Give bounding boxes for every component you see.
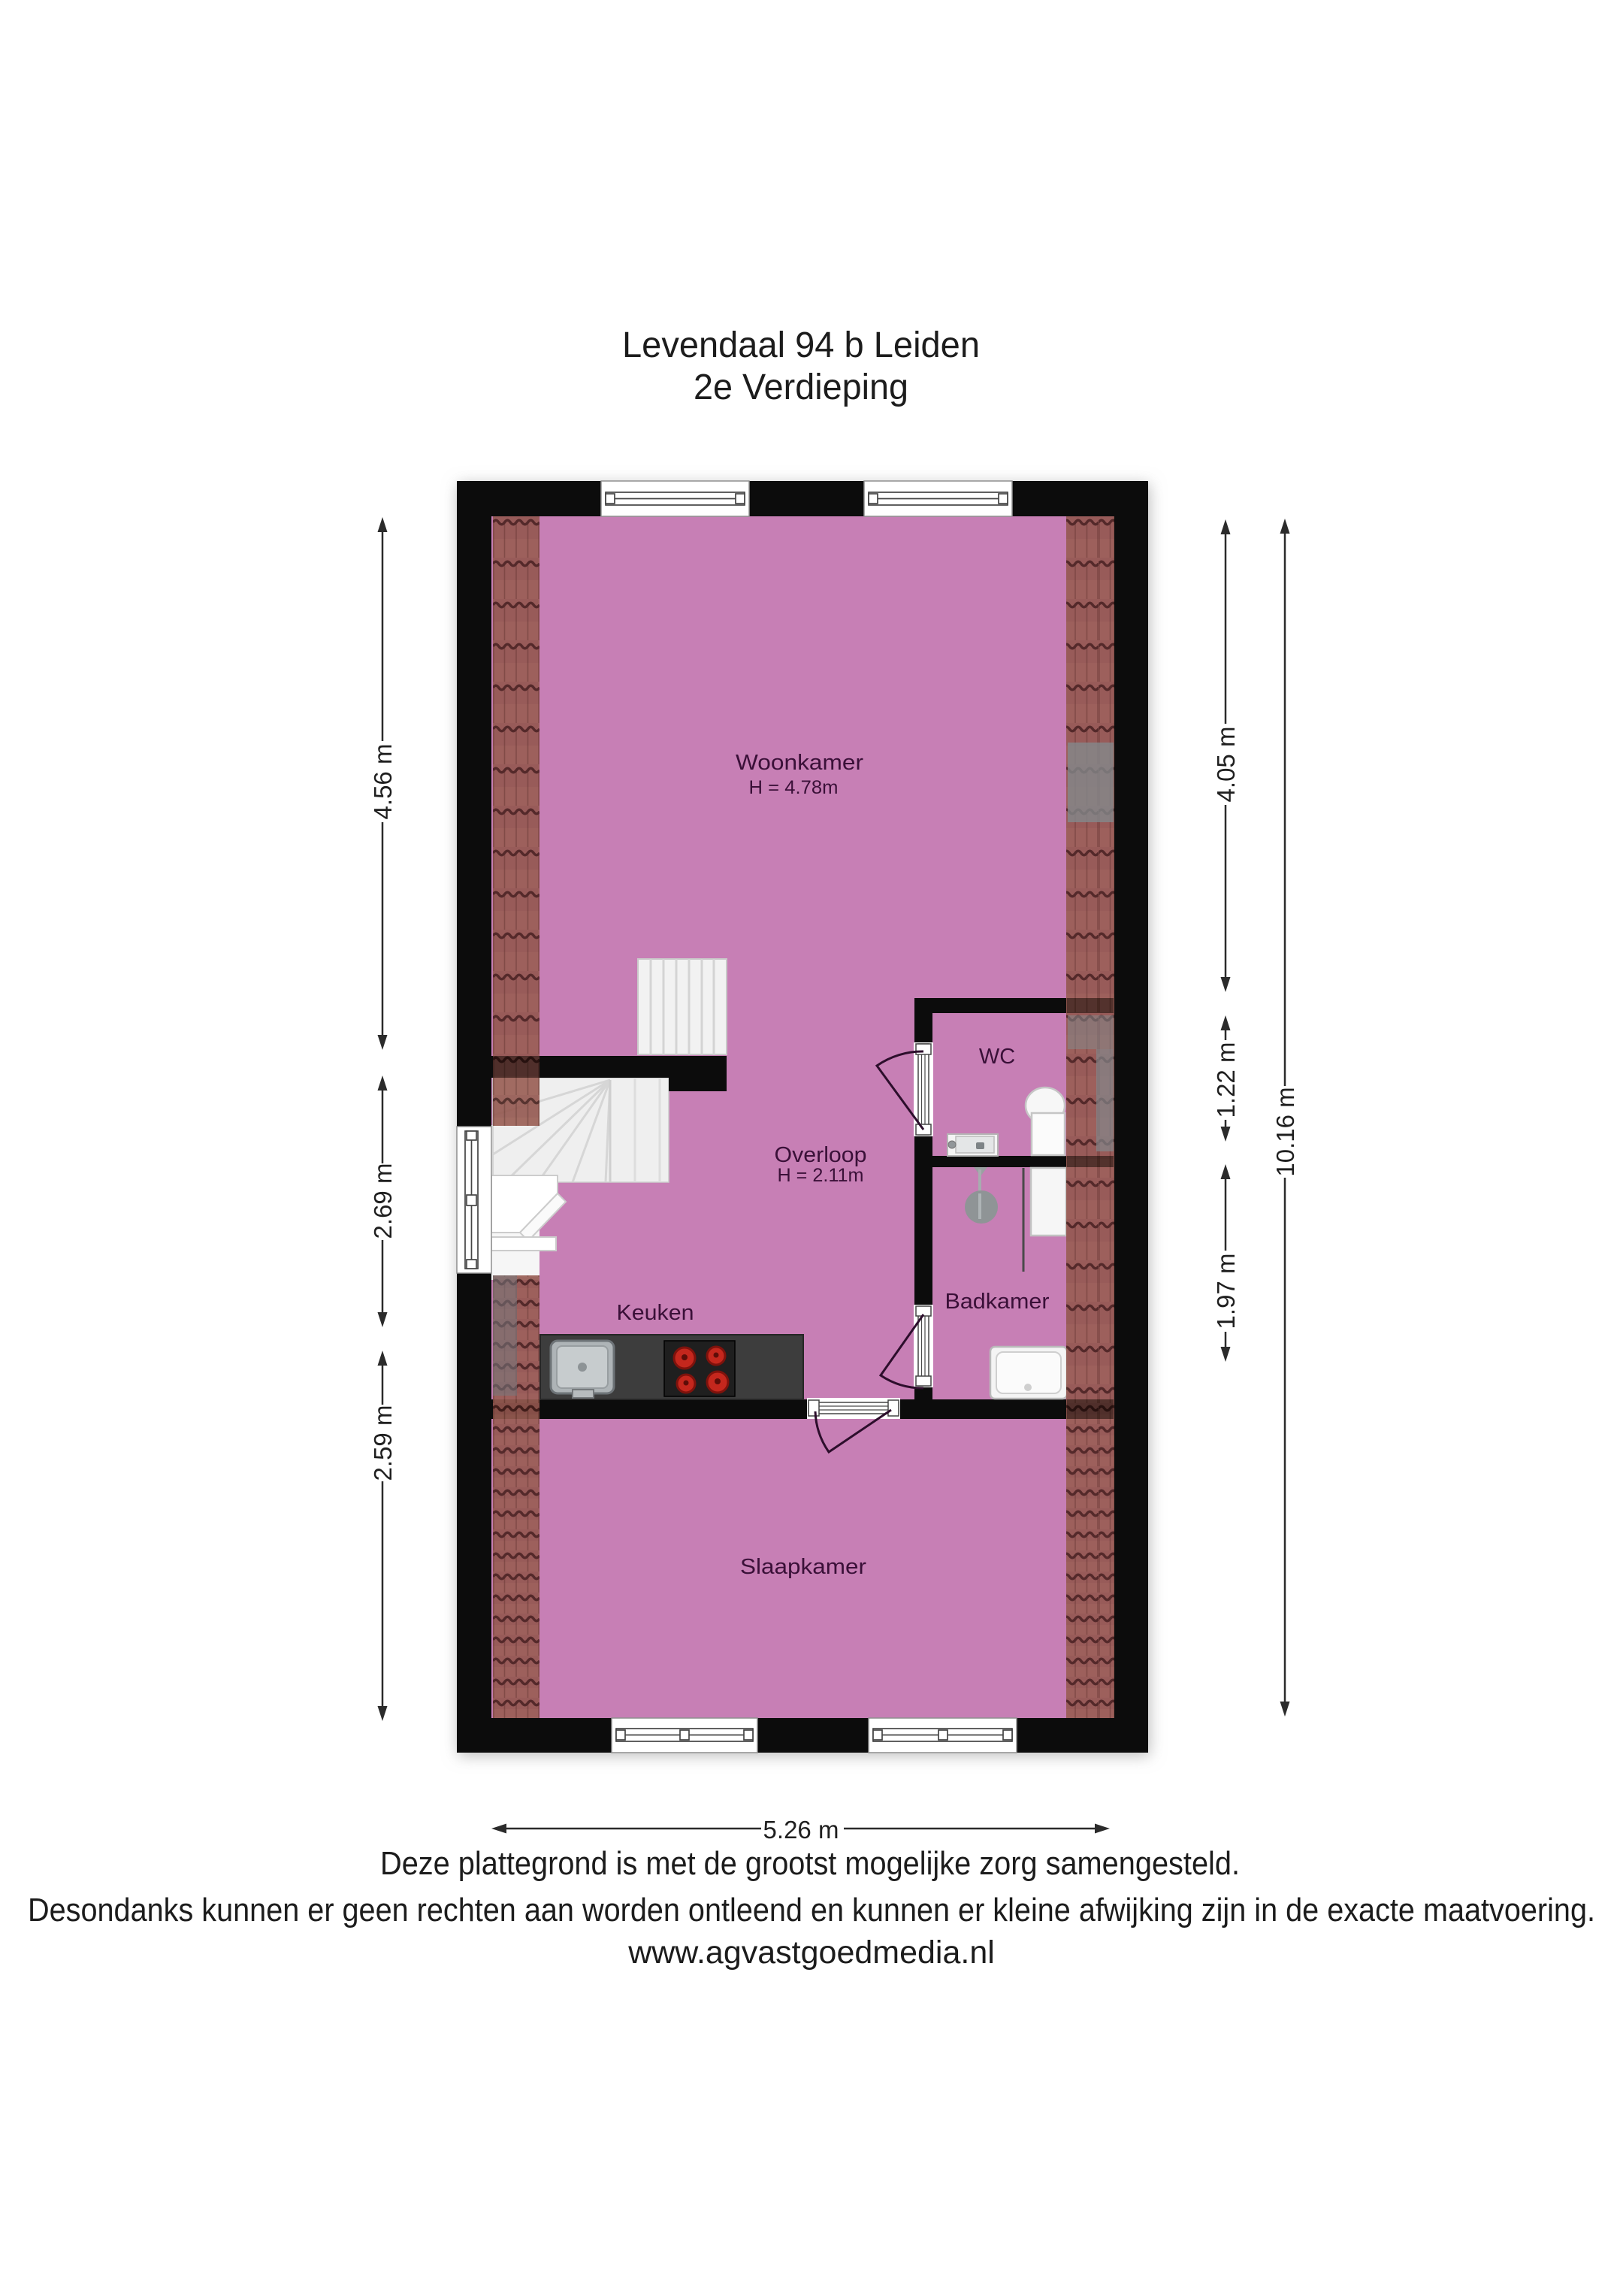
svg-text:Desondanks kunnen er geen rech: Desondanks kunnen er geen rechten aan wo… [28, 1892, 1595, 1928]
svg-text:2.59 m: 2.59 m [369, 1405, 397, 1481]
svg-text:2.69 m: 2.69 m [369, 1163, 397, 1239]
svg-text:2e Verdieping: 2e Verdieping [694, 368, 908, 407]
svg-text:1.97 m: 1.97 m [1212, 1254, 1240, 1330]
svg-text:H = 2.11m: H = 2.11m [778, 1165, 864, 1186]
svg-text:www.agvastgoedmedia.nl: www.agvastgoedmedia.nl [627, 1935, 995, 1971]
svg-text:Deze plattegrond is met de gro: Deze plattegrond is met de grootst mogel… [380, 1845, 1240, 1882]
svg-text:Levendaal 94 b Leiden: Levendaal 94 b Leiden [622, 325, 980, 365]
svg-text:10.16 m: 10.16 m [1271, 1087, 1299, 1176]
svg-text:5.26 m: 5.26 m [763, 1816, 839, 1844]
svg-text:Badkamer: Badkamer [945, 1290, 1050, 1314]
svg-text:WC: WC [979, 1045, 1015, 1069]
svg-text:4.05 m: 4.05 m [1212, 727, 1240, 803]
svg-text:Keuken: Keuken [617, 1301, 694, 1325]
svg-text:1.22 m: 1.22 m [1212, 1042, 1240, 1118]
svg-text:Slaapkamer: Slaapkamer [740, 1555, 866, 1579]
svg-text:Overloop: Overloop [775, 1143, 867, 1167]
svg-text:4.56 m: 4.56 m [369, 744, 397, 820]
svg-text:H = 4.78m: H = 4.78m [749, 777, 839, 798]
svg-text:Woonkamer: Woonkamer [736, 751, 863, 775]
